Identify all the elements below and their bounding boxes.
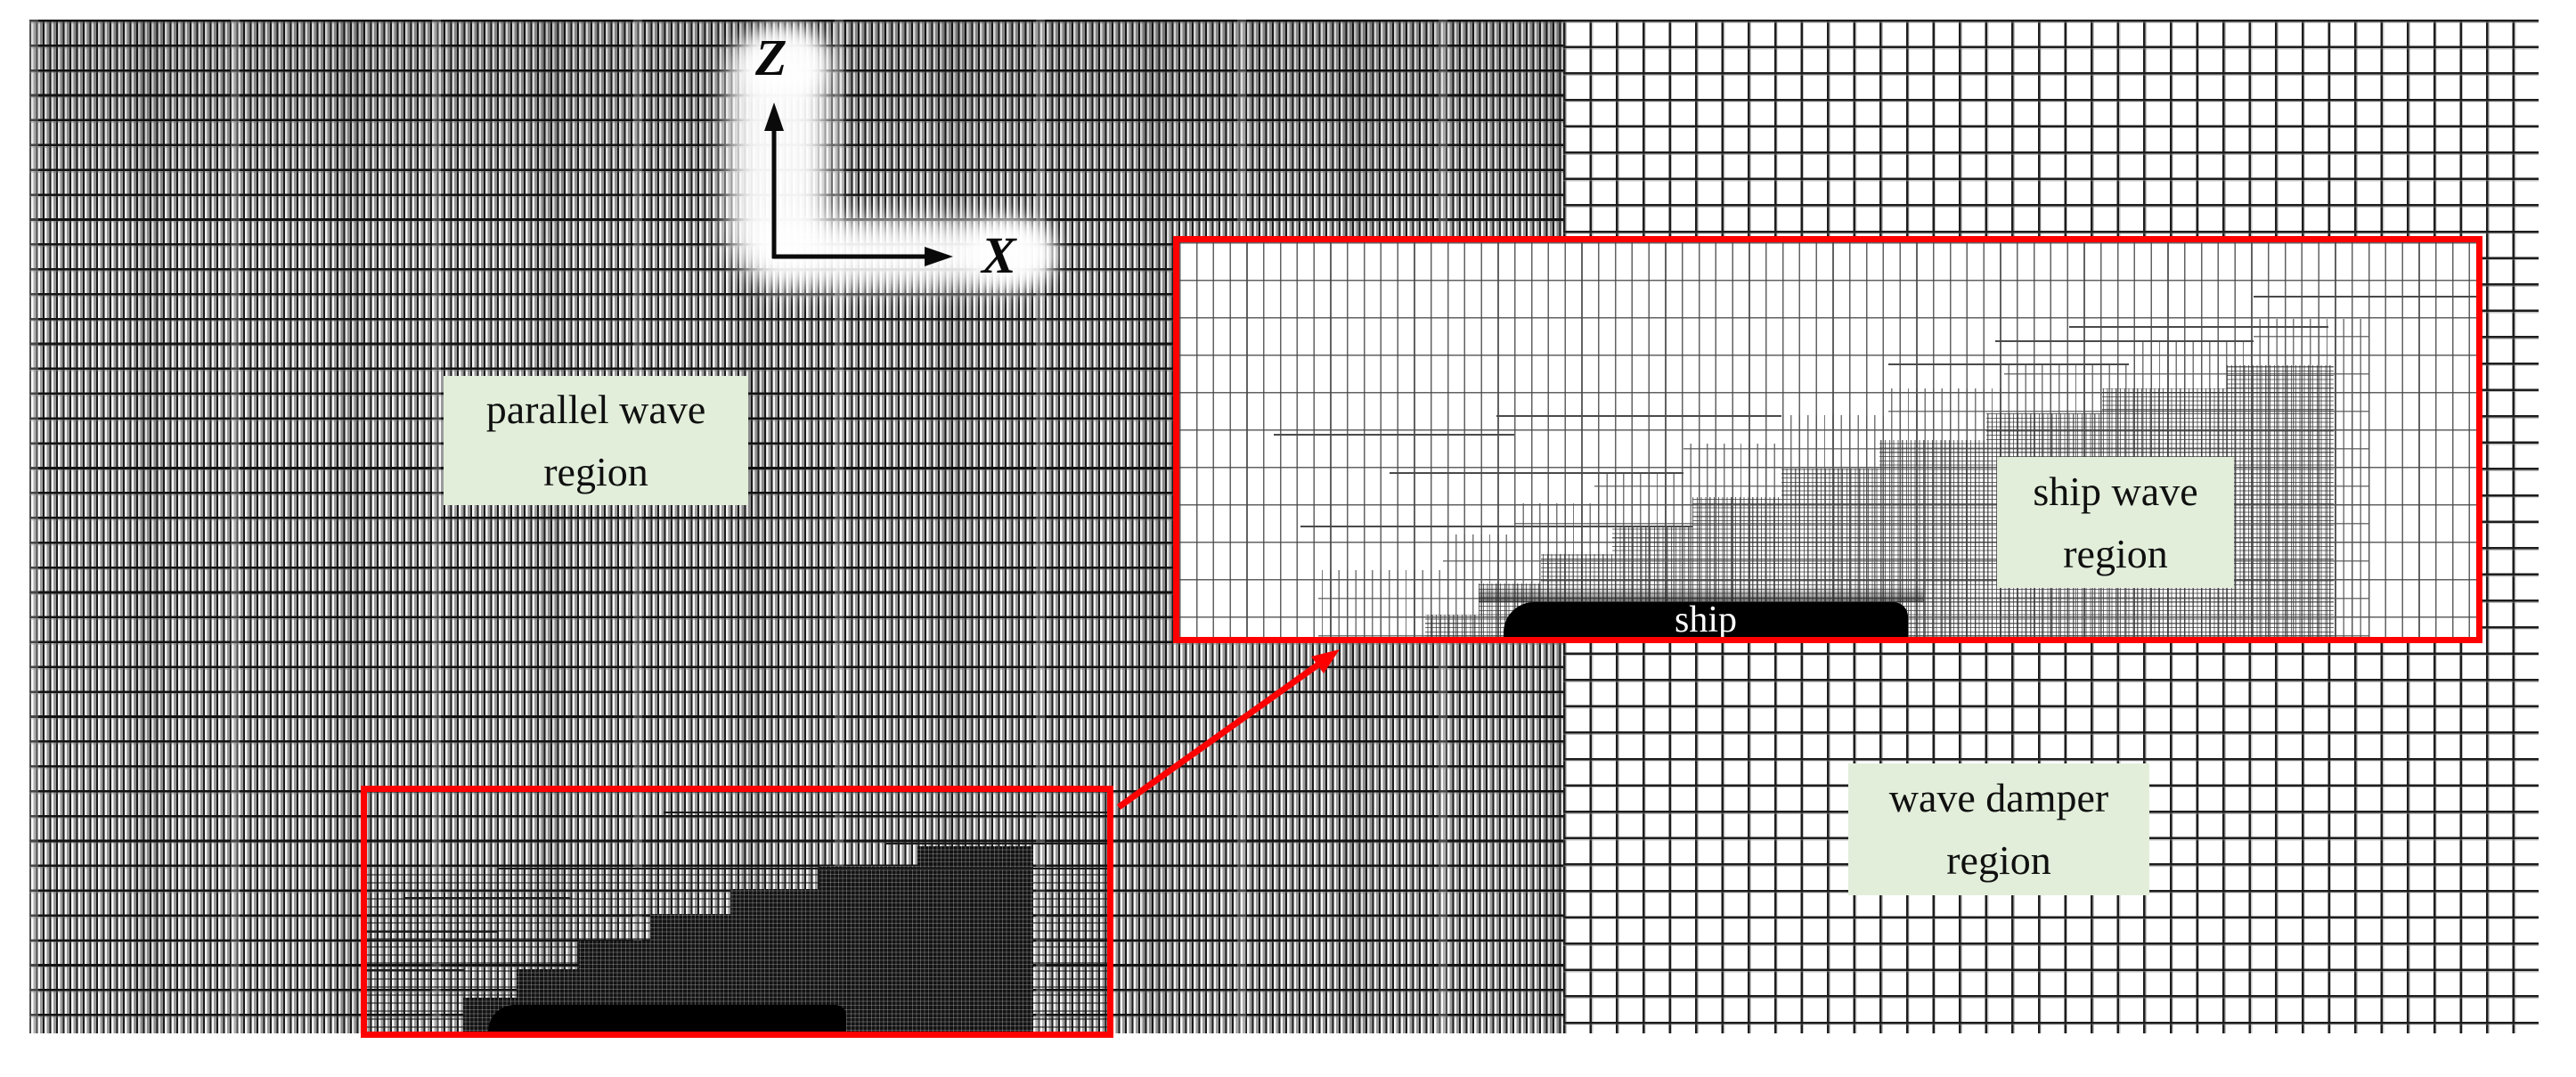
refinement-line bbox=[1496, 415, 1781, 417]
zoom-inset-box: ship ship wave region bbox=[1173, 236, 2482, 643]
refinement-line bbox=[1995, 340, 2254, 342]
label-line: wave damper bbox=[1889, 767, 2109, 829]
label-line: region bbox=[2063, 523, 2168, 585]
z-axis-label: Z bbox=[755, 32, 787, 84]
refinement-line bbox=[1274, 434, 1514, 436]
refinement-line bbox=[1390, 472, 1683, 474]
label-line: region bbox=[1946, 829, 2051, 892]
parallel-wave-region-label: parallel wave region bbox=[444, 376, 748, 505]
refinement-line bbox=[2254, 296, 2476, 298]
refinement-line bbox=[1888, 363, 2129, 365]
label-line: region bbox=[543, 441, 648, 503]
refinement-line bbox=[2069, 326, 2328, 328]
ship-label: ship bbox=[1504, 602, 1908, 637]
label-line: parallel wave bbox=[486, 379, 705, 441]
ship-wave-region-label: ship wave region bbox=[1997, 457, 2234, 588]
refinement-line bbox=[1300, 526, 1692, 527]
mesh-figure: Z X ship ship wave region parallel wave … bbox=[0, 0, 2576, 1077]
label-line: ship wave bbox=[2033, 461, 2197, 523]
x-axis-label: X bbox=[982, 230, 1016, 281]
wave-damper-region-label: wave damper region bbox=[1848, 763, 2149, 895]
